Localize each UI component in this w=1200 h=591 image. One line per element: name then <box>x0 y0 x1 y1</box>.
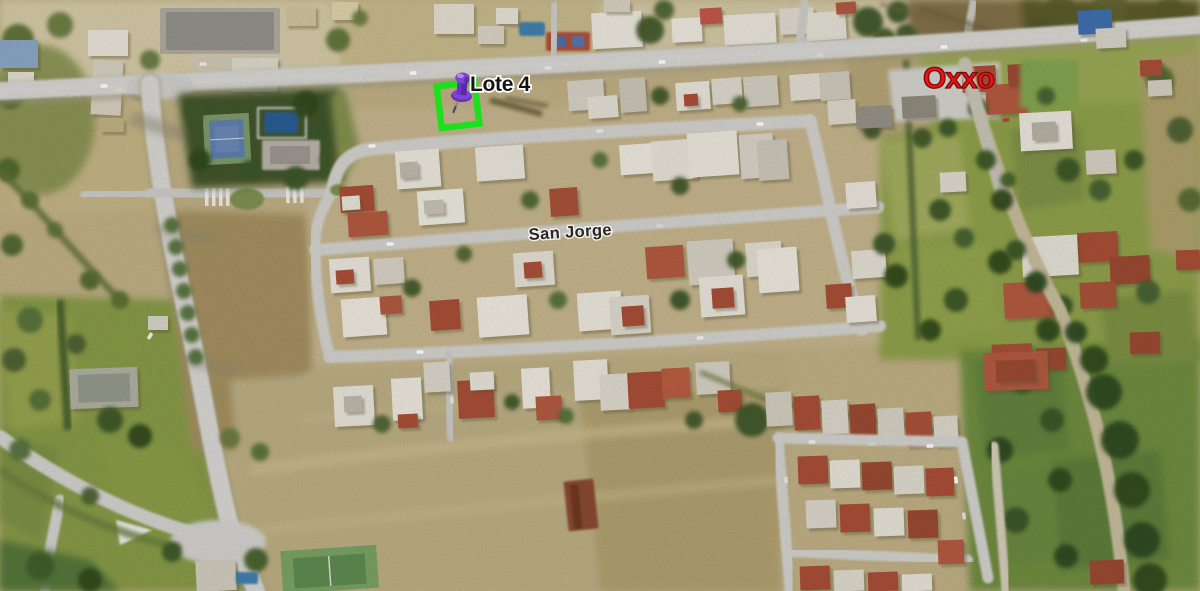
svg-text:Oxxo: Oxxo <box>923 62 995 95</box>
svg-text:Lote 4: Lote 4 <box>470 73 531 96</box>
